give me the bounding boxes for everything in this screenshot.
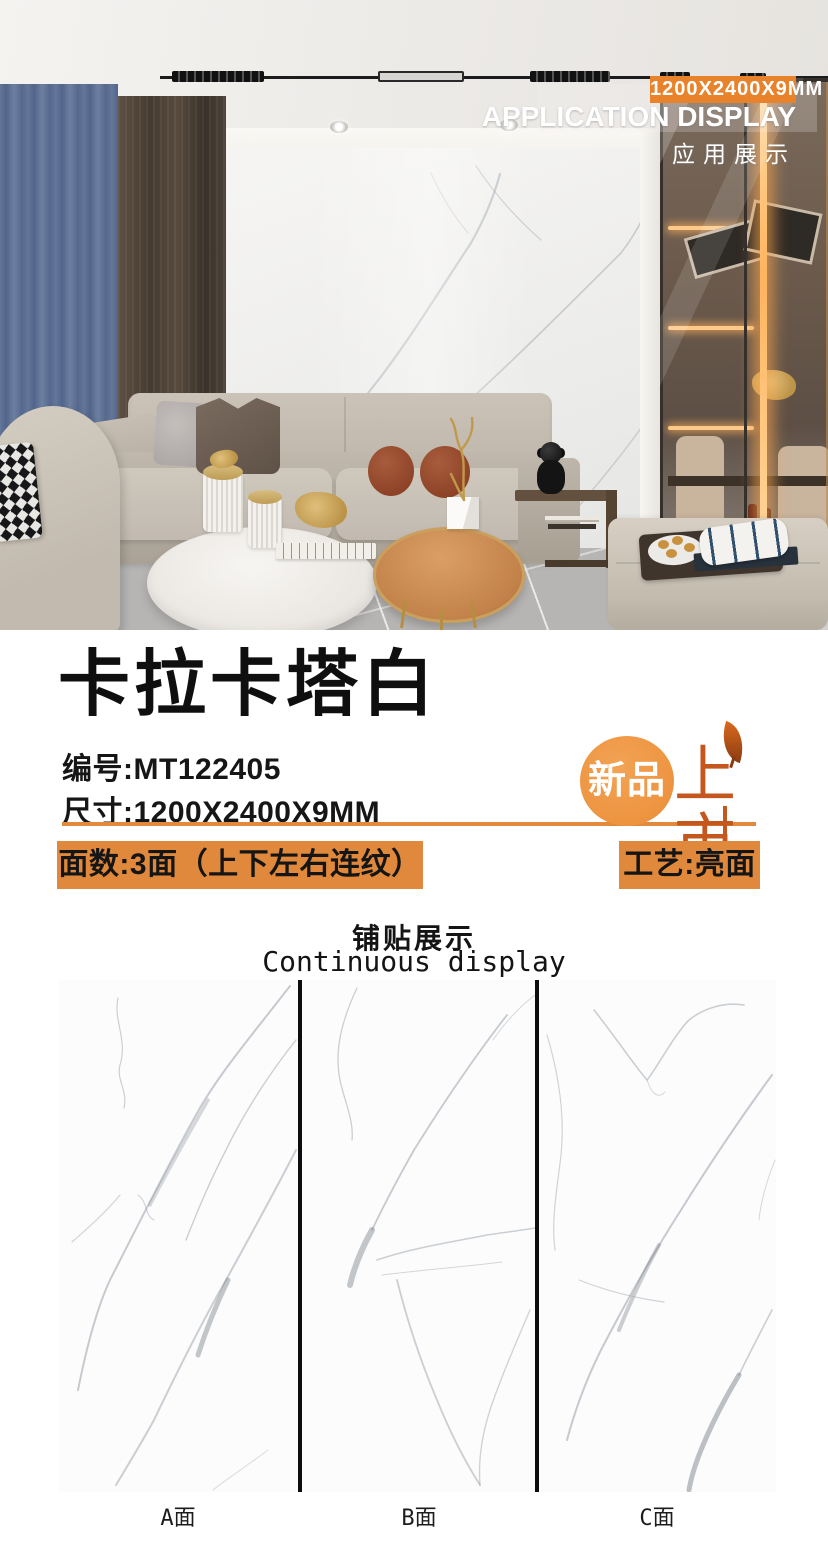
track-light-segment [172, 71, 264, 82]
product-code-label: 编号: [62, 753, 134, 786]
rust-round-pillow [368, 446, 414, 496]
orange-side-table [373, 527, 525, 623]
downlight [330, 121, 348, 133]
application-display-heading: APPLICATION DISPLAY [400, 101, 796, 133]
product-detail-page: 1200X2400X9MM APPLICATION DISPLAY 应用展示 卡… [0, 0, 828, 1559]
panel-label-a: A面 [138, 1500, 218, 1532]
tile-a-veins [58, 980, 298, 1492]
canister-gold-lid [248, 490, 282, 504]
product-code-value: MT122405 [134, 753, 281, 786]
side-table [515, 490, 617, 501]
cookie [684, 543, 695, 552]
spec-bar-faces: 面数:3面（上下左右连纹） [57, 841, 423, 889]
gold-sculpture [448, 412, 482, 502]
cookie [658, 540, 669, 549]
accent-underline [62, 822, 756, 826]
application-photo: 1200X2400X9MM APPLICATION DISPLAY 应用展示 [0, 0, 828, 630]
panel-label-b: B面 [379, 1500, 459, 1532]
cookie [666, 549, 677, 558]
tile-b-veins [302, 980, 535, 1492]
tile-panel-a [58, 980, 298, 1492]
cookie [672, 536, 683, 545]
stacked-book [548, 524, 596, 529]
side-table-base [545, 560, 617, 567]
table-leg [440, 610, 443, 630]
display-heading-en: Continuous display [0, 945, 828, 978]
panel-label-c: C面 [617, 1500, 697, 1532]
brown-velvet-pillow [196, 398, 280, 474]
track-light-segment [530, 71, 610, 82]
size-badge: 1200X2400X9MM [650, 76, 796, 103]
decor-canister [203, 472, 243, 532]
track-light-segment [378, 71, 464, 82]
book-tray [276, 543, 376, 559]
stacked-book [545, 516, 599, 522]
application-display-subheading: 应用展示 [400, 135, 796, 169]
black-figurine-body [537, 460, 565, 494]
tile-panel-strip [58, 980, 776, 1492]
tile-panel-b [302, 980, 535, 1492]
product-code-line: 编号:MT122405 [62, 744, 281, 788]
new-arrival-badge-circle: 新品 [580, 736, 674, 826]
spec-bar-finish: 工艺:亮面 [619, 841, 760, 889]
tile-c-veins [539, 980, 776, 1492]
product-title: 卡拉卡塔白 [58, 648, 618, 724]
tile-panel-c [539, 980, 776, 1492]
wall-edge-pillar [640, 128, 660, 574]
